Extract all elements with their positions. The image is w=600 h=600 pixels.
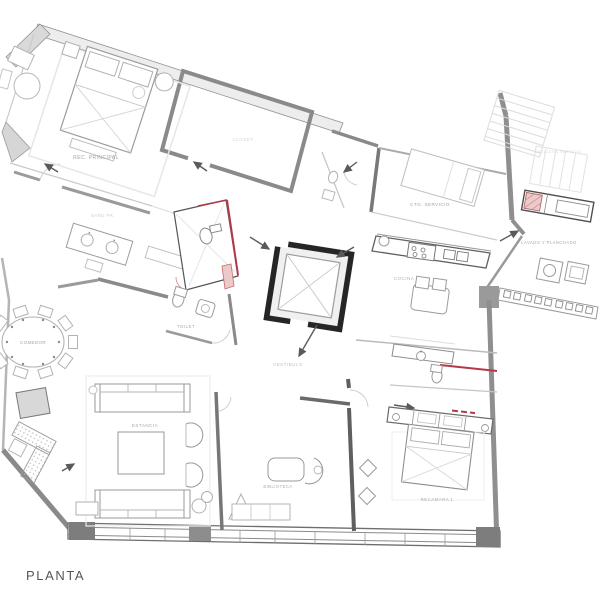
- label-comedor: COMEDOR: [20, 340, 46, 345]
- bedroom1-furniture: [359, 336, 493, 504]
- sideboard: [16, 388, 50, 419]
- floor-plan-svg: REC. PRINCIPAL CLOSET BAÑO PR. CTO. SERV…: [0, 0, 600, 600]
- label-estancia: ESTANCIA: [132, 423, 159, 428]
- label-cocina: COCINA: [394, 276, 415, 281]
- label-cto-servicio: CTO. SERVICIO: [410, 202, 450, 207]
- master-bath-vanity: [62, 223, 133, 278]
- label-lavado-planchado: LAVADO Y PLANCHADO: [521, 240, 577, 245]
- kitchen-table: [410, 276, 449, 314]
- label-biblioteca: BIBLIOTECA: [263, 484, 292, 489]
- terrace-pergola: [498, 288, 598, 319]
- floor-plan-canvas: REC. PRINCIPAL CLOSET BAÑO PR. CTO. SERV…: [0, 0, 600, 600]
- label-recamara-1: RECAMARA 1: [421, 497, 454, 502]
- lounge-sofa: [0, 422, 56, 483]
- library-furniture: [229, 458, 323, 520]
- laundry-counter: [521, 190, 593, 222]
- plan-title: PLANTA: [26, 568, 85, 583]
- label-rec-principal: REC. PRINCIPAL: [73, 155, 119, 161]
- terrace-planters: [536, 256, 588, 288]
- bedroom-lounge: [0, 46, 40, 99]
- label-closet: CLOSET: [233, 137, 254, 142]
- master-bedroom-furniture: [29, 40, 192, 197]
- label-bano-principal: BAÑO PR.: [91, 213, 115, 218]
- kitchen-counter: [372, 234, 491, 268]
- elevator-core: [260, 237, 353, 335]
- label-escalera-servicio: ESCALERA SERVICIO: [535, 150, 582, 154]
- label-toilet: TOILET: [177, 324, 195, 329]
- label-vestibulo: VESTIBULO: [273, 362, 303, 367]
- service-room-furniture: [401, 149, 485, 206]
- service-bath-fixtures: [322, 170, 341, 201]
- living-room-furniture: [76, 376, 213, 526]
- toilet-fixtures: [170, 286, 217, 318]
